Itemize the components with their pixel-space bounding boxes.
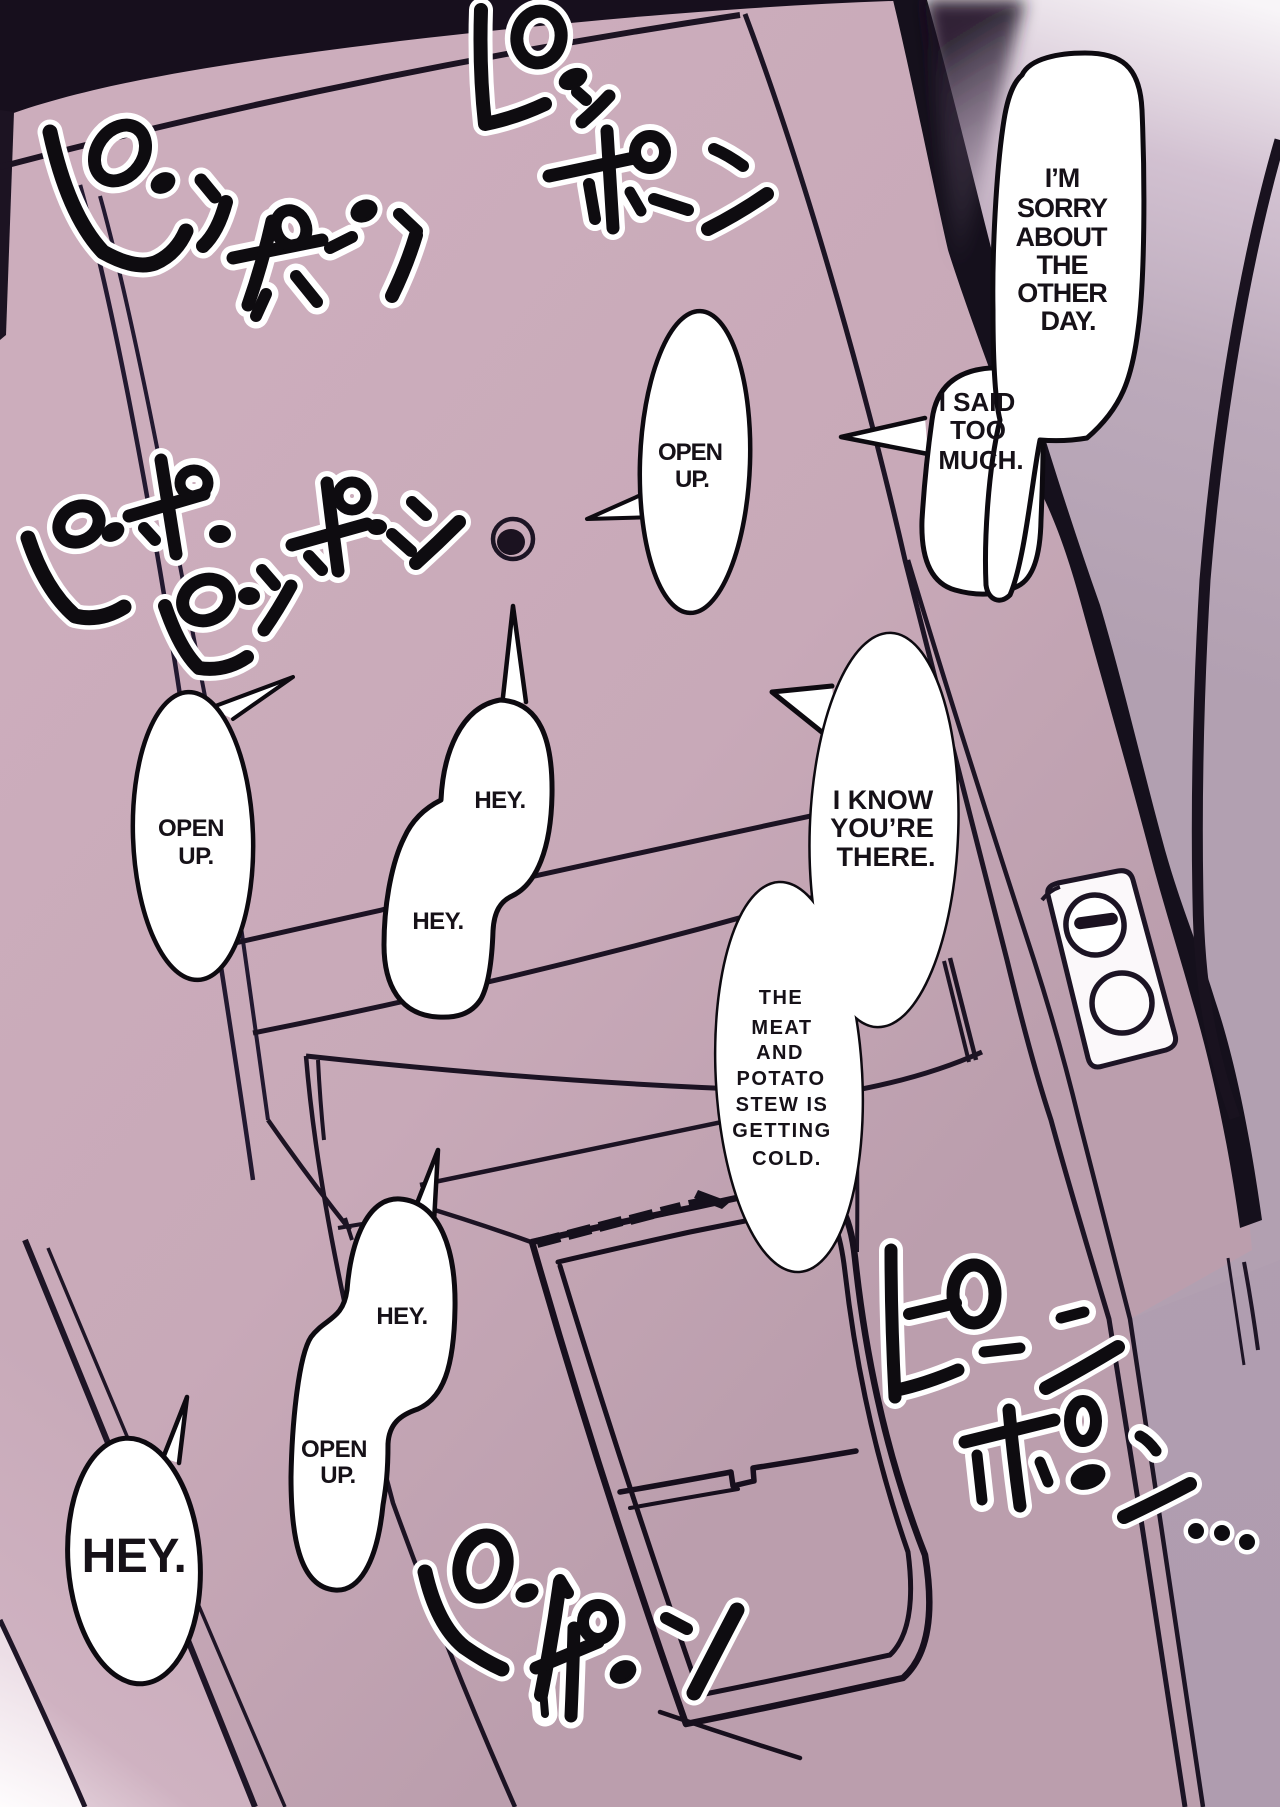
svg-text:I KNOW: I KNOW <box>833 785 934 815</box>
svg-text:OPEN: OPEN <box>658 439 722 466</box>
svg-text:THERE.: THERE. <box>836 842 935 872</box>
svg-text:I’M: I’M <box>1045 163 1080 193</box>
svg-text:HEY.: HEY. <box>82 1530 187 1583</box>
svg-text:TOO: TOO <box>950 415 1006 445</box>
svg-text:SORRY: SORRY <box>1017 193 1108 223</box>
svg-text:HEY.: HEY. <box>376 1303 427 1330</box>
svg-text:POTATO: POTATO <box>737 1068 826 1090</box>
svg-text:MUCH.: MUCH. <box>938 445 1023 475</box>
svg-text:OPEN: OPEN <box>301 1436 367 1463</box>
svg-text:HEY.: HEY. <box>412 908 463 935</box>
svg-text:HEY.: HEY. <box>474 787 525 814</box>
svg-text:I SAID: I SAID <box>939 387 1016 417</box>
svg-text:UP.: UP. <box>320 1462 355 1489</box>
svg-text:THE: THE <box>1037 250 1088 280</box>
svg-text:STEW IS: STEW IS <box>736 1094 829 1116</box>
svg-text:COLD.: COLD. <box>752 1148 822 1170</box>
svg-text:MEAT: MEAT <box>751 1017 812 1039</box>
svg-text:OTHER: OTHER <box>1017 278 1107 308</box>
svg-text:UP.: UP. <box>675 466 709 493</box>
svg-text:OPEN: OPEN <box>158 815 224 842</box>
svg-text:THE: THE <box>759 987 804 1009</box>
svg-text:DAY.: DAY. <box>1040 306 1095 336</box>
svg-text:UP.: UP. <box>178 843 213 870</box>
svg-text:YOU’RE: YOU’RE <box>830 813 934 843</box>
svg-text:AND: AND <box>756 1042 804 1064</box>
svg-text:ABOUT: ABOUT <box>1016 222 1108 252</box>
svg-text:GETTING: GETTING <box>732 1120 831 1142</box>
